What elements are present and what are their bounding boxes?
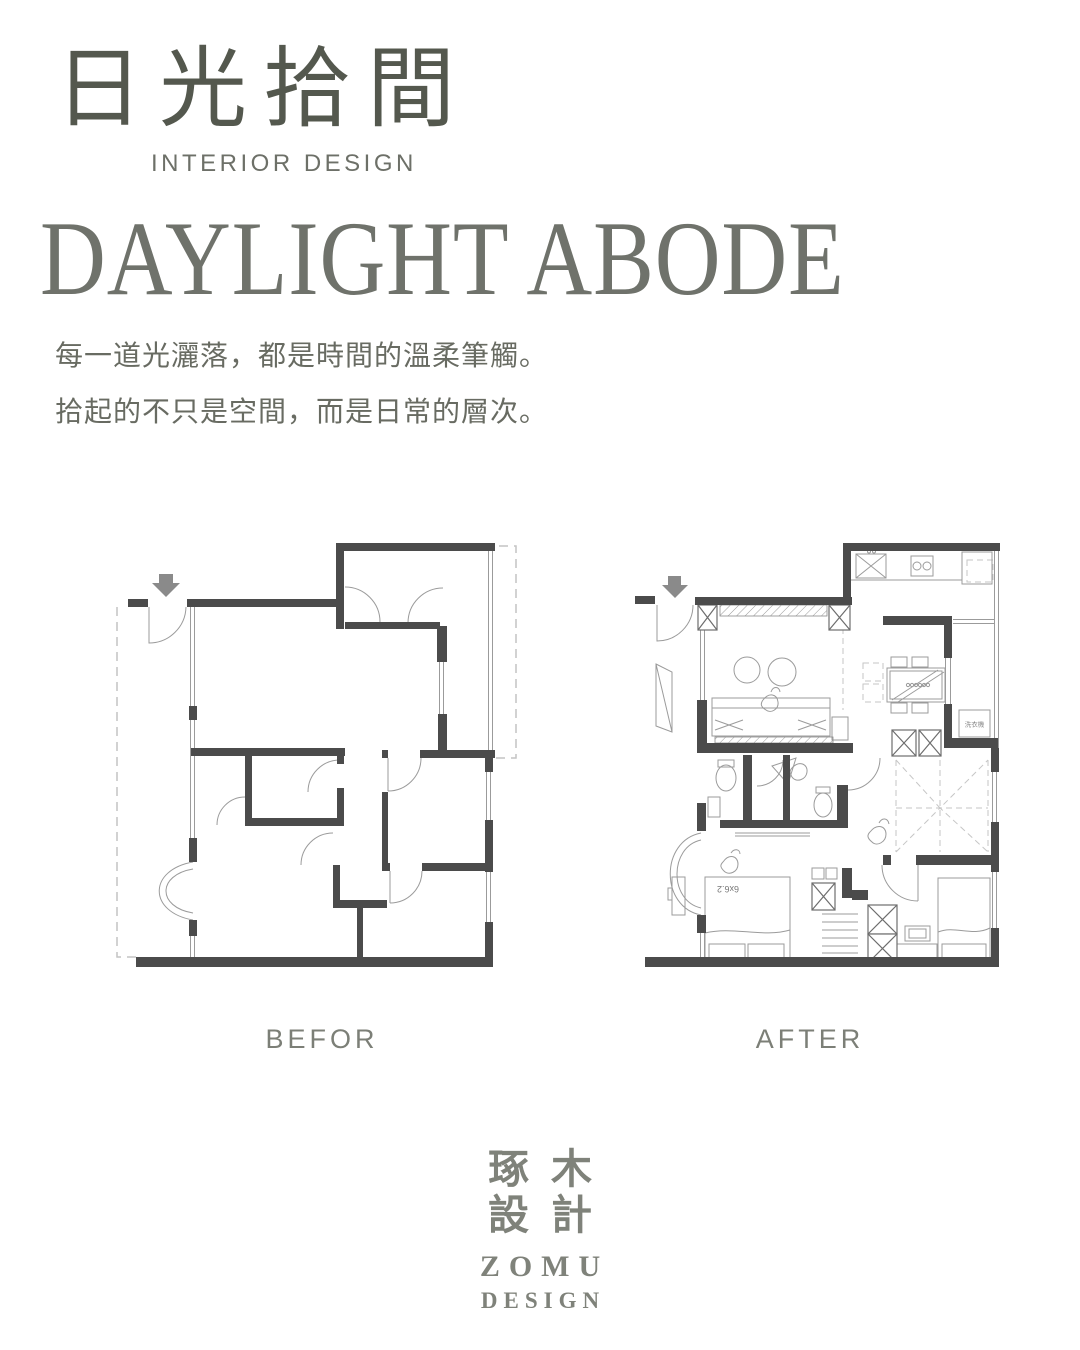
logo-english-line-1: ZOMU bbox=[9, 1250, 1080, 1284]
tagline-line-2: 拾起的不只是空間，而是日常的層次。 bbox=[55, 390, 548, 430]
zomu-design-logo: 琢木 設計 ZOMU DESIGN bbox=[0, 1146, 1080, 1314]
after-plan-label: AFTER bbox=[700, 1024, 920, 1055]
washer-label: 洗衣機 bbox=[965, 720, 985, 729]
before-floor-plan bbox=[100, 520, 540, 980]
bed-size-label: 6x6.2 bbox=[717, 884, 739, 894]
after-floor-plan: 洗衣機 6x6.2 bbox=[620, 520, 1020, 980]
main-title-english: DAYLIGHT ABODE bbox=[40, 198, 845, 320]
logo-chinese-line-1: 琢木 bbox=[22, 1146, 1080, 1192]
main-title-chinese: 日光拾間 bbox=[55, 18, 471, 145]
poster-page: 日光拾間 INTERIOR DESIGN DAYLIGHT ABODE 每一道光… bbox=[0, 0, 1080, 1350]
before-plan-label: BEFOR bbox=[212, 1024, 432, 1055]
before-walls bbox=[128, 543, 495, 967]
logo-chinese-line-2: 設計 bbox=[22, 1192, 1080, 1238]
entry-arrow-icon bbox=[662, 576, 688, 598]
after-dashed-lines bbox=[843, 560, 993, 852]
subtitle-interior-design: INTERIOR DESIGN bbox=[151, 150, 417, 178]
entry-arrow-icon bbox=[152, 574, 180, 597]
tagline-line-1: 每一道光灑落，都是時間的溫柔筆觸。 bbox=[55, 334, 548, 374]
logo-english-line-2: DESIGN bbox=[6, 1288, 1080, 1314]
